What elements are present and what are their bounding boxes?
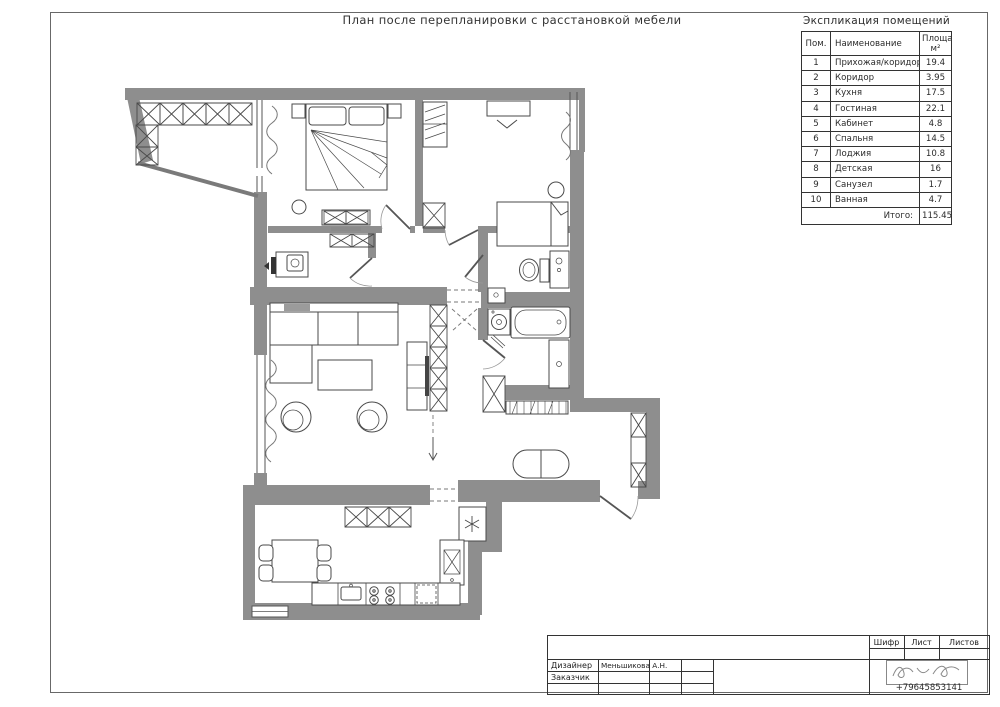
direction-arrow — [429, 437, 437, 460]
table-row: 1Прихожая/коридор19.4 — [802, 56, 952, 71]
wall-bedroom-bottom-r — [410, 226, 415, 233]
openings — [430, 290, 481, 501]
wall-kitchen-right-low — [468, 552, 482, 615]
wall-kitchen-step — [468, 540, 502, 552]
window-living-left — [257, 355, 265, 473]
kids-desk — [487, 101, 530, 116]
hall-sink — [488, 288, 505, 303]
wall-fridge-side — [486, 502, 502, 542]
wall-left-mid — [254, 192, 267, 355]
wall-corridor-band — [250, 287, 447, 305]
oven-column — [440, 540, 464, 585]
kitchen — [259, 507, 486, 605]
bath-towel — [491, 335, 505, 348]
bath-vanity — [549, 340, 569, 388]
dining-set — [259, 540, 331, 582]
kids-dresser — [423, 203, 445, 228]
table-row: 4Гостиная22.1 — [802, 101, 952, 116]
entry-pouf — [513, 450, 569, 478]
entry-door-leaf — [600, 496, 631, 519]
wall-bedroom-bottom-l — [268, 226, 382, 233]
col-header-area: Площадь м² — [920, 32, 952, 56]
kids-curtain — [562, 112, 571, 160]
kids-wardrobe — [423, 102, 447, 147]
bedroom-door-leaf — [386, 205, 410, 229]
table-row: 8Детская16 — [802, 162, 952, 177]
kids-desk-chair — [497, 120, 517, 128]
entry-corner-wardrobe — [483, 376, 505, 412]
entry-bench — [506, 401, 568, 414]
kids-chair — [548, 182, 564, 198]
explication-title: Экспликация помещений — [801, 15, 952, 27]
entry-door-arc — [631, 496, 638, 519]
wc-tank — [540, 259, 549, 282]
wall-entry-door-stub — [638, 481, 660, 499]
kids-bed — [497, 202, 568, 246]
wall-entry-bottom — [458, 480, 600, 502]
bedroom-curtain — [267, 106, 278, 174]
office-chair — [287, 255, 303, 271]
lounge-chair-2 — [357, 402, 387, 432]
table-row: 6Спальня14.5 — [802, 131, 952, 146]
entry-wardrobe — [631, 413, 646, 487]
bedroom-pillow-right — [349, 107, 384, 125]
wall-bedroom-left-thin — [257, 100, 262, 192]
kids-door-arc — [445, 230, 449, 245]
doors — [350, 205, 638, 519]
office-door-arc — [350, 278, 372, 286]
table-row: 2Коридор3.95 — [802, 71, 952, 86]
table-row: 7Лоджия10.8 — [802, 147, 952, 162]
wall-kitchen-left — [243, 505, 255, 618]
client-label: Заказчик — [551, 673, 590, 682]
kids-room — [423, 101, 571, 246]
wall-kids-bottom-l — [423, 226, 445, 233]
washing-machine — [488, 309, 510, 335]
fridge — [459, 507, 486, 541]
kids-door-leaf — [449, 230, 478, 245]
explication-panel: Экспликация помещений Пом. Наименование … — [801, 15, 952, 225]
wall-bed-kids-divider — [415, 100, 423, 226]
office-door-leaf — [350, 258, 372, 278]
bedroom-nightstand-left — [292, 104, 305, 118]
table-row: 9Санузел1.7 — [802, 177, 952, 192]
table-header-row: Пом. Наименование Площадь м² — [802, 32, 952, 56]
living-room — [266, 303, 447, 462]
wall-top — [125, 88, 584, 100]
sheets-label: Листов — [939, 638, 989, 647]
table-row: 3Кухня17.5 — [802, 86, 952, 101]
wall-kitchen-top — [243, 485, 430, 505]
wall-loggia-diagonal — [138, 163, 258, 196]
kitchen-counter — [312, 583, 460, 605]
col-header-num: Пом. — [802, 32, 831, 56]
wall-entry-right — [646, 398, 660, 495]
walls — [125, 88, 660, 620]
wall-kids-window-frame — [579, 88, 585, 152]
table-total-row: Итого: 115.45 — [802, 207, 952, 224]
coffee-table — [318, 360, 372, 390]
designer-label: Дизайнер — [551, 661, 592, 670]
total-label: Итого: — [802, 207, 920, 224]
dining-table — [272, 540, 318, 582]
bedroom-pillow-left — [309, 107, 346, 125]
title-block: Шифр Лист Листов Дизайнер Меньшикова А.Н… — [547, 635, 990, 695]
bedroom-door-arc — [381, 205, 386, 229]
living-wardrobe-strip — [430, 305, 447, 411]
designer-signature — [886, 660, 968, 685]
loggia-wardrobe — [136, 103, 252, 165]
bedroom-stool — [292, 200, 306, 214]
office-monitor — [271, 257, 276, 274]
table-row: 10Ванная4.7 — [802, 192, 952, 207]
bedroom-nightstand-right — [388, 104, 401, 118]
bedroom-tv — [331, 227, 361, 231]
bathtub — [511, 307, 570, 338]
window-kids-right — [570, 92, 577, 150]
tv-unit — [407, 342, 429, 410]
bath-door-arc — [483, 358, 505, 369]
cipher-label: Шифр — [869, 638, 904, 647]
sheet-label: Лист — [904, 638, 939, 647]
table-row: 5Кабинет4.8 — [802, 116, 952, 131]
lounge-chair-1 — [281, 402, 311, 432]
office-wardrobe — [330, 234, 374, 247]
bedroom — [267, 104, 401, 231]
total-value: 115.45 — [920, 207, 952, 224]
wall-bath-left — [478, 308, 488, 340]
wc-vanity — [550, 251, 569, 288]
window-kitchen — [252, 606, 288, 617]
kitchen-wardrobe — [345, 507, 411, 527]
designer-name: Меньшикова А.Н. — [601, 661, 667, 670]
col-header-name: Наименование — [831, 32, 920, 56]
explication-table: Пом. Наименование Площадь м² 1Прихожая/к… — [801, 31, 952, 225]
phone-number: +79645853141 — [869, 683, 989, 693]
wall-right — [570, 150, 584, 400]
